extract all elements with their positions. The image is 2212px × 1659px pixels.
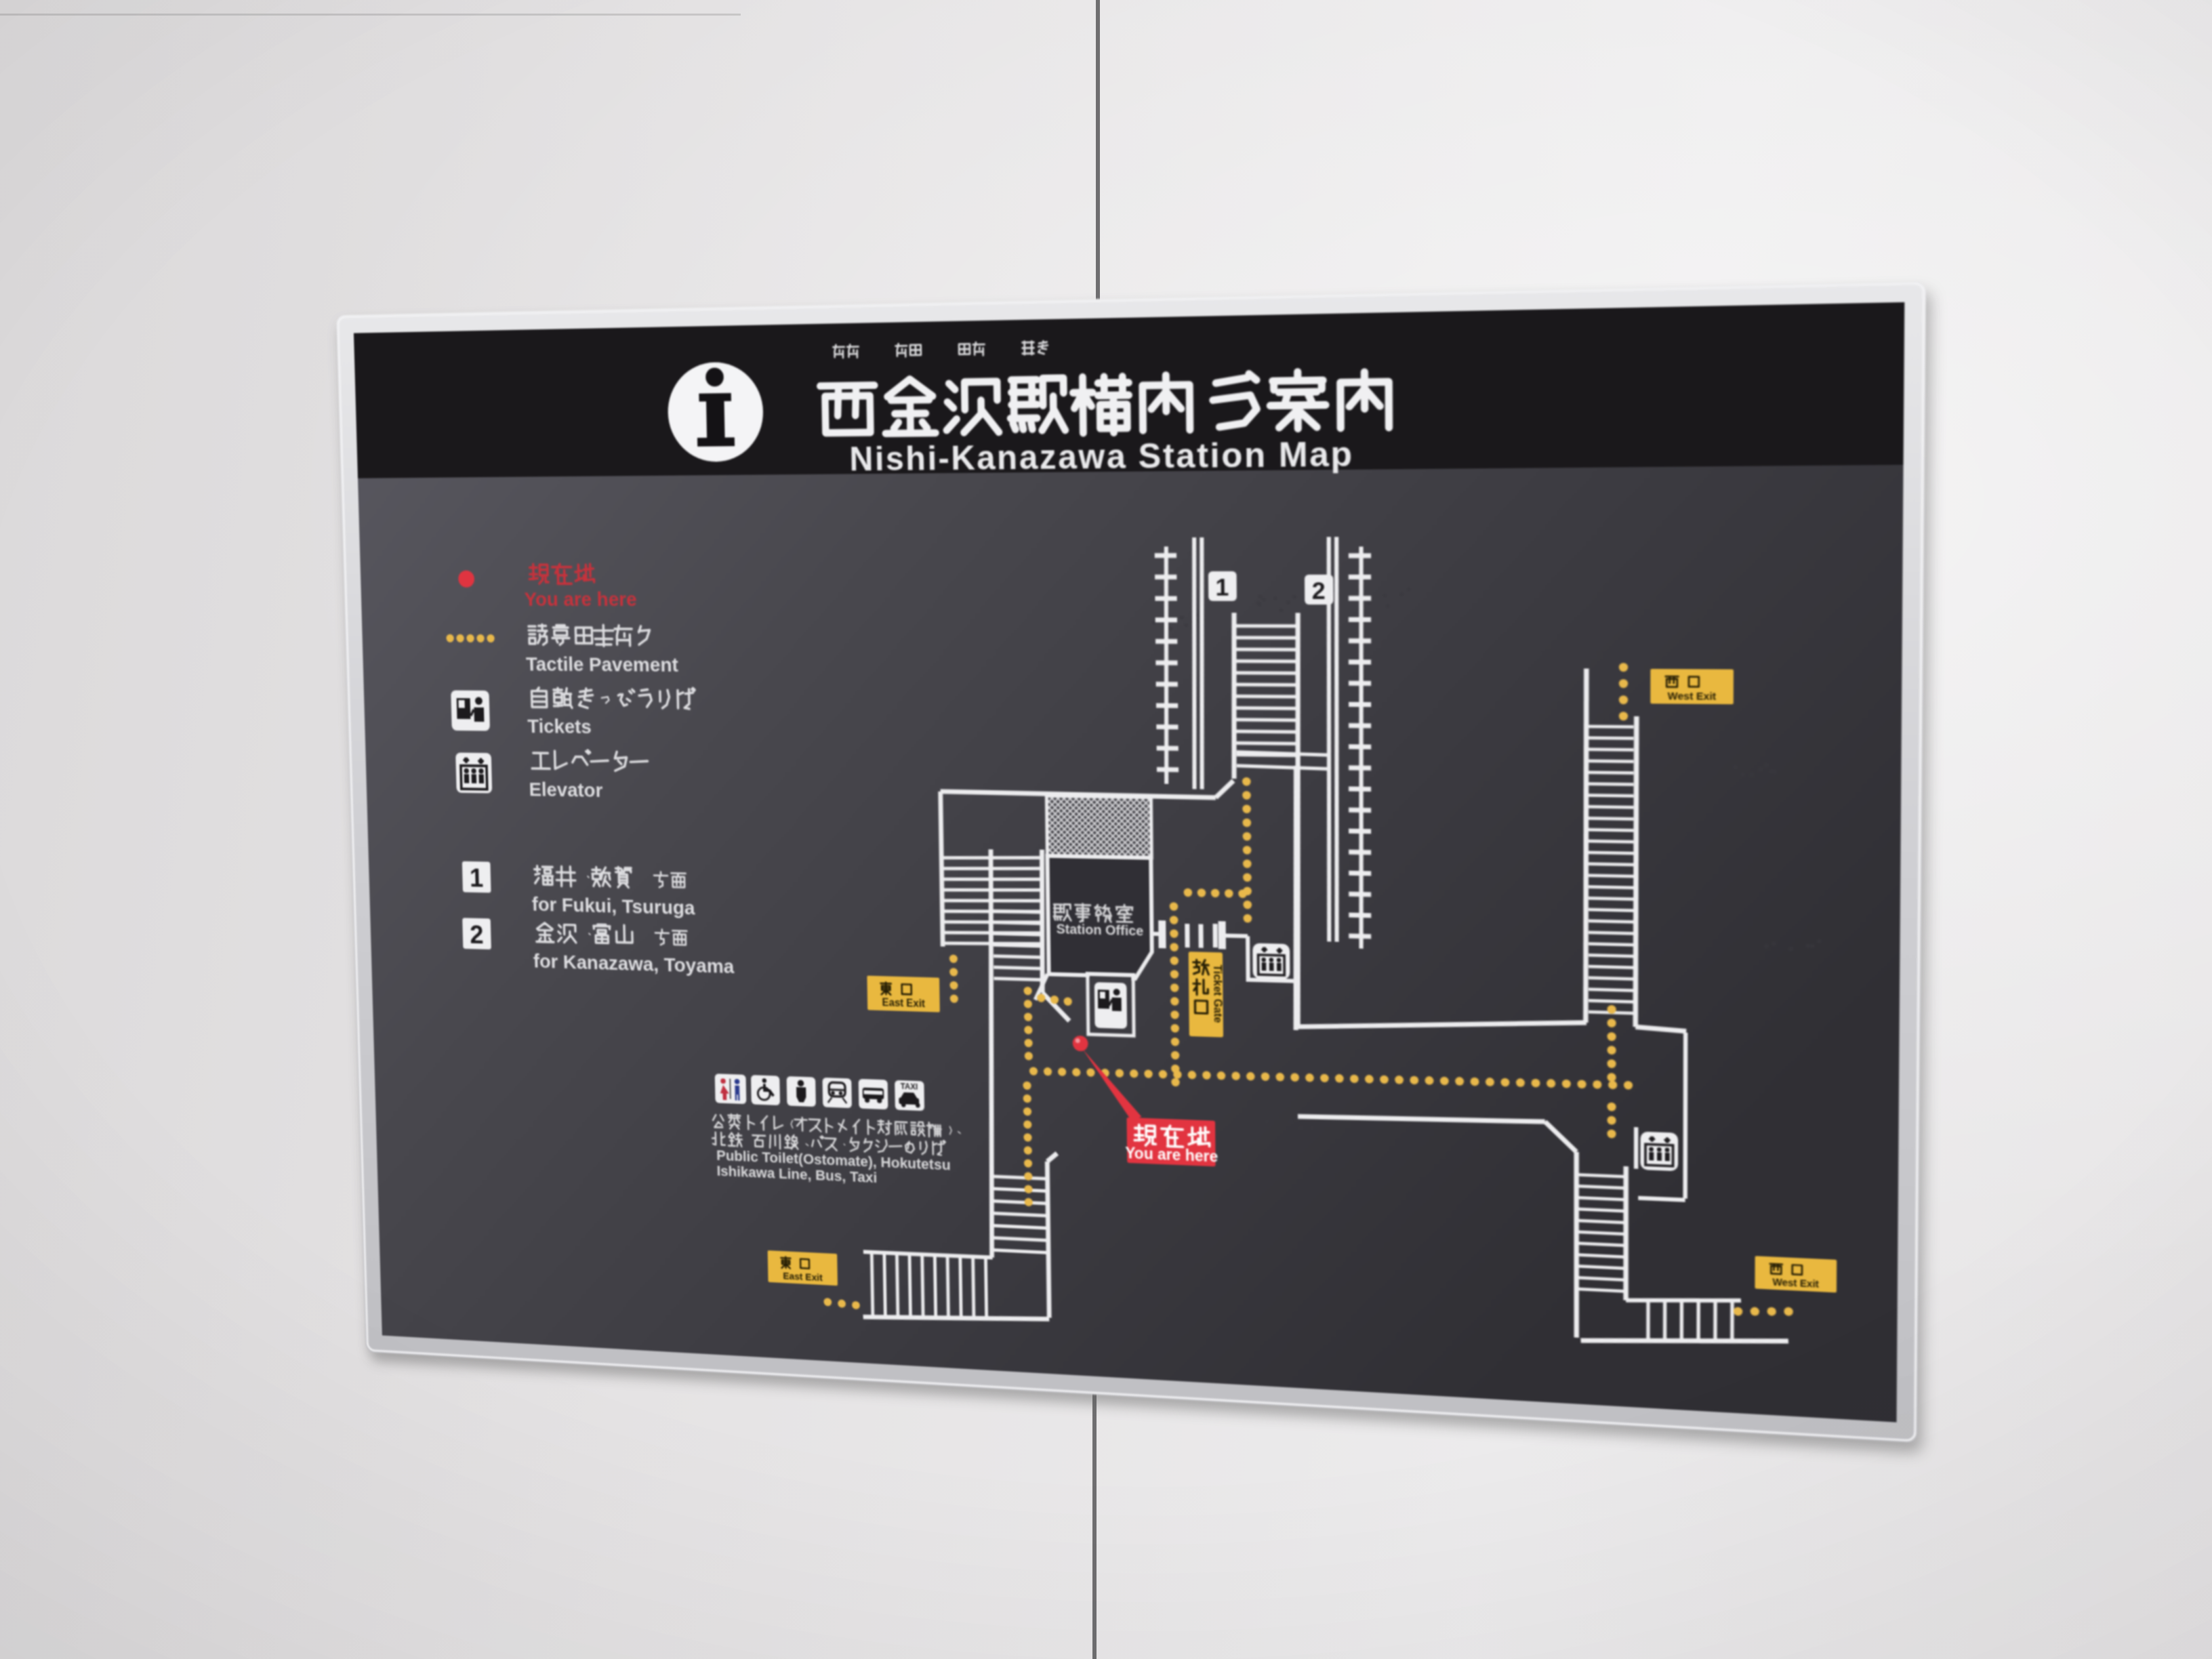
svg-text:East Exit: East Exit	[882, 998, 925, 1010]
svg-text:Station Office: Station Office	[1056, 921, 1143, 939]
svg-text:Tickets: Tickets	[527, 715, 592, 737]
svg-text:1: 1	[470, 863, 484, 893]
svg-text:2: 2	[470, 920, 484, 949]
svg-text:2: 2	[1312, 577, 1326, 605]
svg-text:Elevator: Elevator	[529, 778, 603, 801]
svg-text:West Exit: West Exit	[1668, 690, 1717, 702]
svg-text:Ticket Gate: Ticket Gate	[1211, 964, 1223, 1023]
svg-text:1: 1	[1215, 574, 1229, 601]
svg-text:for Fukui, Tsuruga: for Fukui, Tsuruga	[531, 893, 695, 919]
svg-text:Nishi-Kanazawa Station Map: Nishi-Kanazawa Station Map	[849, 434, 1354, 478]
svg-text:Tactile Pavement: Tactile Pavement	[526, 653, 678, 676]
svg-text:TAXI: TAXI	[901, 1082, 918, 1092]
svg-text:East Exit: East Exit	[783, 1270, 823, 1283]
svg-text:West Exit: West Exit	[1772, 1276, 1819, 1290]
svg-text:You are here: You are here	[524, 588, 637, 611]
